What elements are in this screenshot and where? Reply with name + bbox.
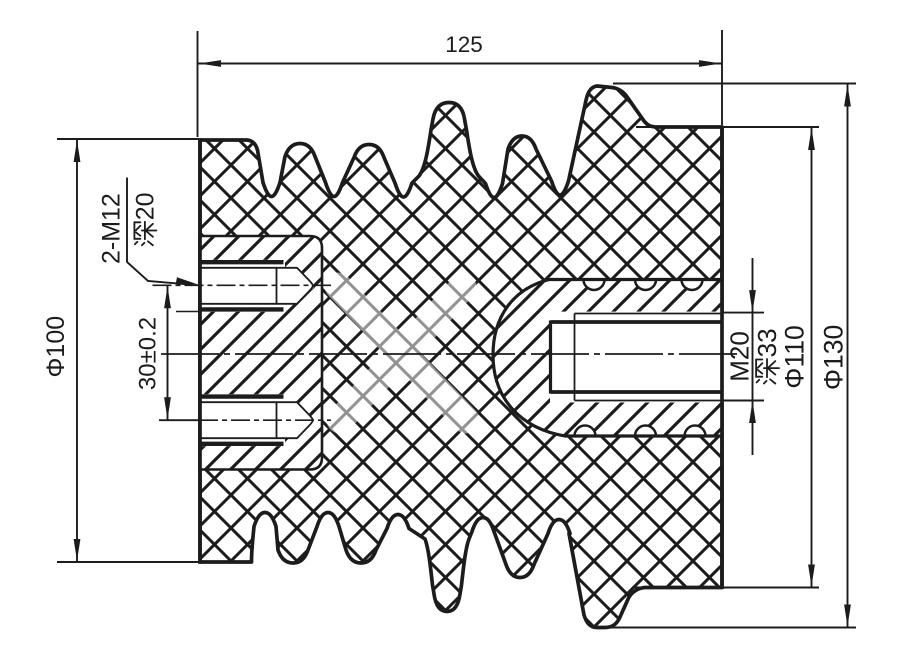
svg-text:125: 125: [445, 32, 483, 57]
svg-text:Φ130: Φ130: [819, 325, 849, 390]
svg-text:M20: M20: [725, 331, 755, 382]
svg-text:33: 33: [752, 328, 782, 357]
svg-text:Φ100: Φ100: [42, 316, 70, 378]
svg-text:20: 20: [131, 192, 159, 220]
svg-text:2-M12: 2-M12: [98, 193, 126, 264]
svg-text:Φ110: Φ110: [780, 325, 810, 388]
svg-text:30±0.2: 30±0.2: [135, 317, 162, 390]
